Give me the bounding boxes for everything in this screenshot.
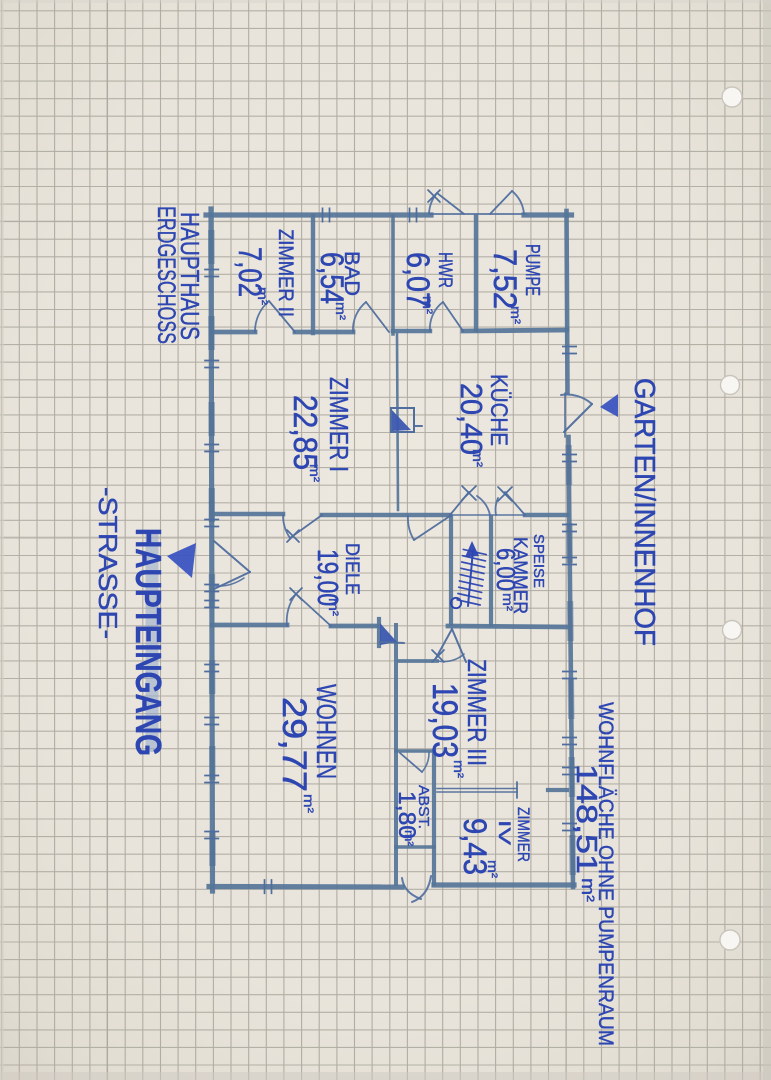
svg-text:6,54: 6,54 [314,252,350,304]
svg-text:m²: m² [301,794,317,813]
svg-text:HAUPTEINGANG: HAUPTEINGANG [128,528,169,756]
svg-text:m²: m² [420,296,436,314]
svg-text:m²: m² [326,598,342,616]
svg-text:DIELE: DIELE [341,543,362,595]
svg-text:19,03: 19,03 [425,683,464,758]
svg-text:ZIMMER II: ZIMMER II [274,229,297,317]
svg-text:HWR: HWR [434,252,455,288]
svg-text:ZIMMER: ZIMMER [514,807,533,862]
svg-text:IV: IV [495,820,514,846]
svg-text:6,00: 6,00 [491,548,521,591]
svg-text:m²: m² [470,449,486,467]
svg-text:m²: m² [485,860,501,878]
svg-text:m²: m² [451,760,467,778]
svg-text:7,52: 7,52 [487,249,523,309]
svg-text:m²: m² [500,593,516,611]
svg-text:m²: m² [508,306,524,324]
svg-text:ZIMMER I: ZIMMER I [324,377,354,472]
svg-text:m²: m² [402,830,416,846]
svg-text:m²: m² [578,878,598,902]
svg-text:HAUPTHAUS: HAUPTHAUS [175,212,205,340]
svg-text:29,77: 29,77 [275,697,313,792]
svg-text:m²: m² [255,287,271,305]
svg-text:148,51: 148,51 [570,764,602,874]
svg-text:20,40: 20,40 [454,383,489,455]
svg-text:SPEISE: SPEISE [530,534,547,588]
svg-text:m²: m² [333,302,349,320]
svg-text:22,85: 22,85 [287,395,324,470]
svg-text:GARTEN/INNENHOF: GARTEN/INNENHOF [628,378,660,646]
svg-text:WOHNFLÄCHE OHNE PUMPENRAUM: WOHNFLÄCHE OHNE PUMPENRAUM [594,702,617,1046]
svg-text:WOHNEN: WOHNEN [311,684,342,779]
svg-text:PUMPE: PUMPE [521,244,543,296]
svg-text:-STRASSE-: -STRASSE- [93,487,123,639]
svg-text:m²: m² [307,464,323,482]
svg-text:ZIMMER III: ZIMMER III [462,659,492,766]
